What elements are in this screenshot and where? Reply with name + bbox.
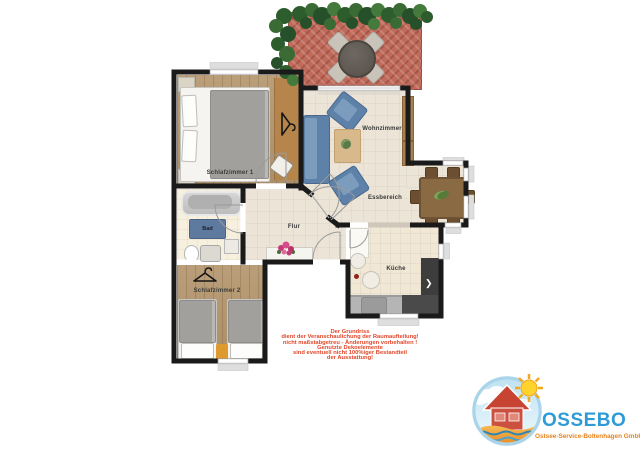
window-sill: [469, 166, 474, 182]
window: [445, 223, 461, 227]
wohnzimmer-label: Wohnzimmer: [362, 126, 402, 132]
door-opening: [350, 222, 368, 227]
door-opening: [240, 203, 245, 232]
door-arc: [308, 187, 355, 220]
door-arc: [256, 153, 286, 183]
door-arc: [215, 205, 243, 233]
window: [210, 70, 258, 74]
schlafzimmer2-label: Schlafzimmer 2: [194, 288, 241, 294]
window: [380, 314, 418, 318]
floor-plan: Bad ❯: [0, 0, 640, 453]
house-window: [495, 413, 505, 421]
door-opening: [256, 183, 286, 188]
window: [464, 196, 468, 218]
disclaimer-line: der Ausstattung!: [220, 356, 480, 361]
window: [443, 161, 463, 165]
window: [439, 244, 443, 259]
interior-walls: [174, 72, 441, 262]
logo-subtitle: Ostsee-Service-Boltenhagen GmbH: [535, 433, 640, 440]
company-logo: OSSEBO Ostsee-Service-Boltenhagen GmbH: [466, 370, 640, 452]
window: [464, 168, 468, 181]
double-door-frame: [311, 194, 329, 218]
schlafzimmer1-label: Schlafzimmer 1: [207, 170, 254, 176]
kueche-label: Küche: [386, 266, 405, 272]
house-window: [509, 413, 519, 421]
door-opening: [177, 259, 197, 264]
window-sill: [445, 243, 450, 259]
flur-label: Flur: [288, 224, 300, 230]
door-arc: [350, 230, 368, 248]
essbereich-label: Essbereich: [368, 195, 402, 201]
sun-icon: [515, 374, 543, 402]
door-arc: [313, 232, 340, 259]
window-sill: [469, 195, 474, 219]
window-sill: [210, 63, 258, 69]
window-sill: [446, 229, 461, 234]
disclaimer-text: Der Grundriss dient der Veranschaulichun…: [220, 330, 480, 362]
window-sill: [218, 365, 248, 371]
door-opening: [313, 259, 340, 264]
window-sill: [378, 320, 419, 326]
logo-name: OSSEBO: [542, 410, 626, 432]
